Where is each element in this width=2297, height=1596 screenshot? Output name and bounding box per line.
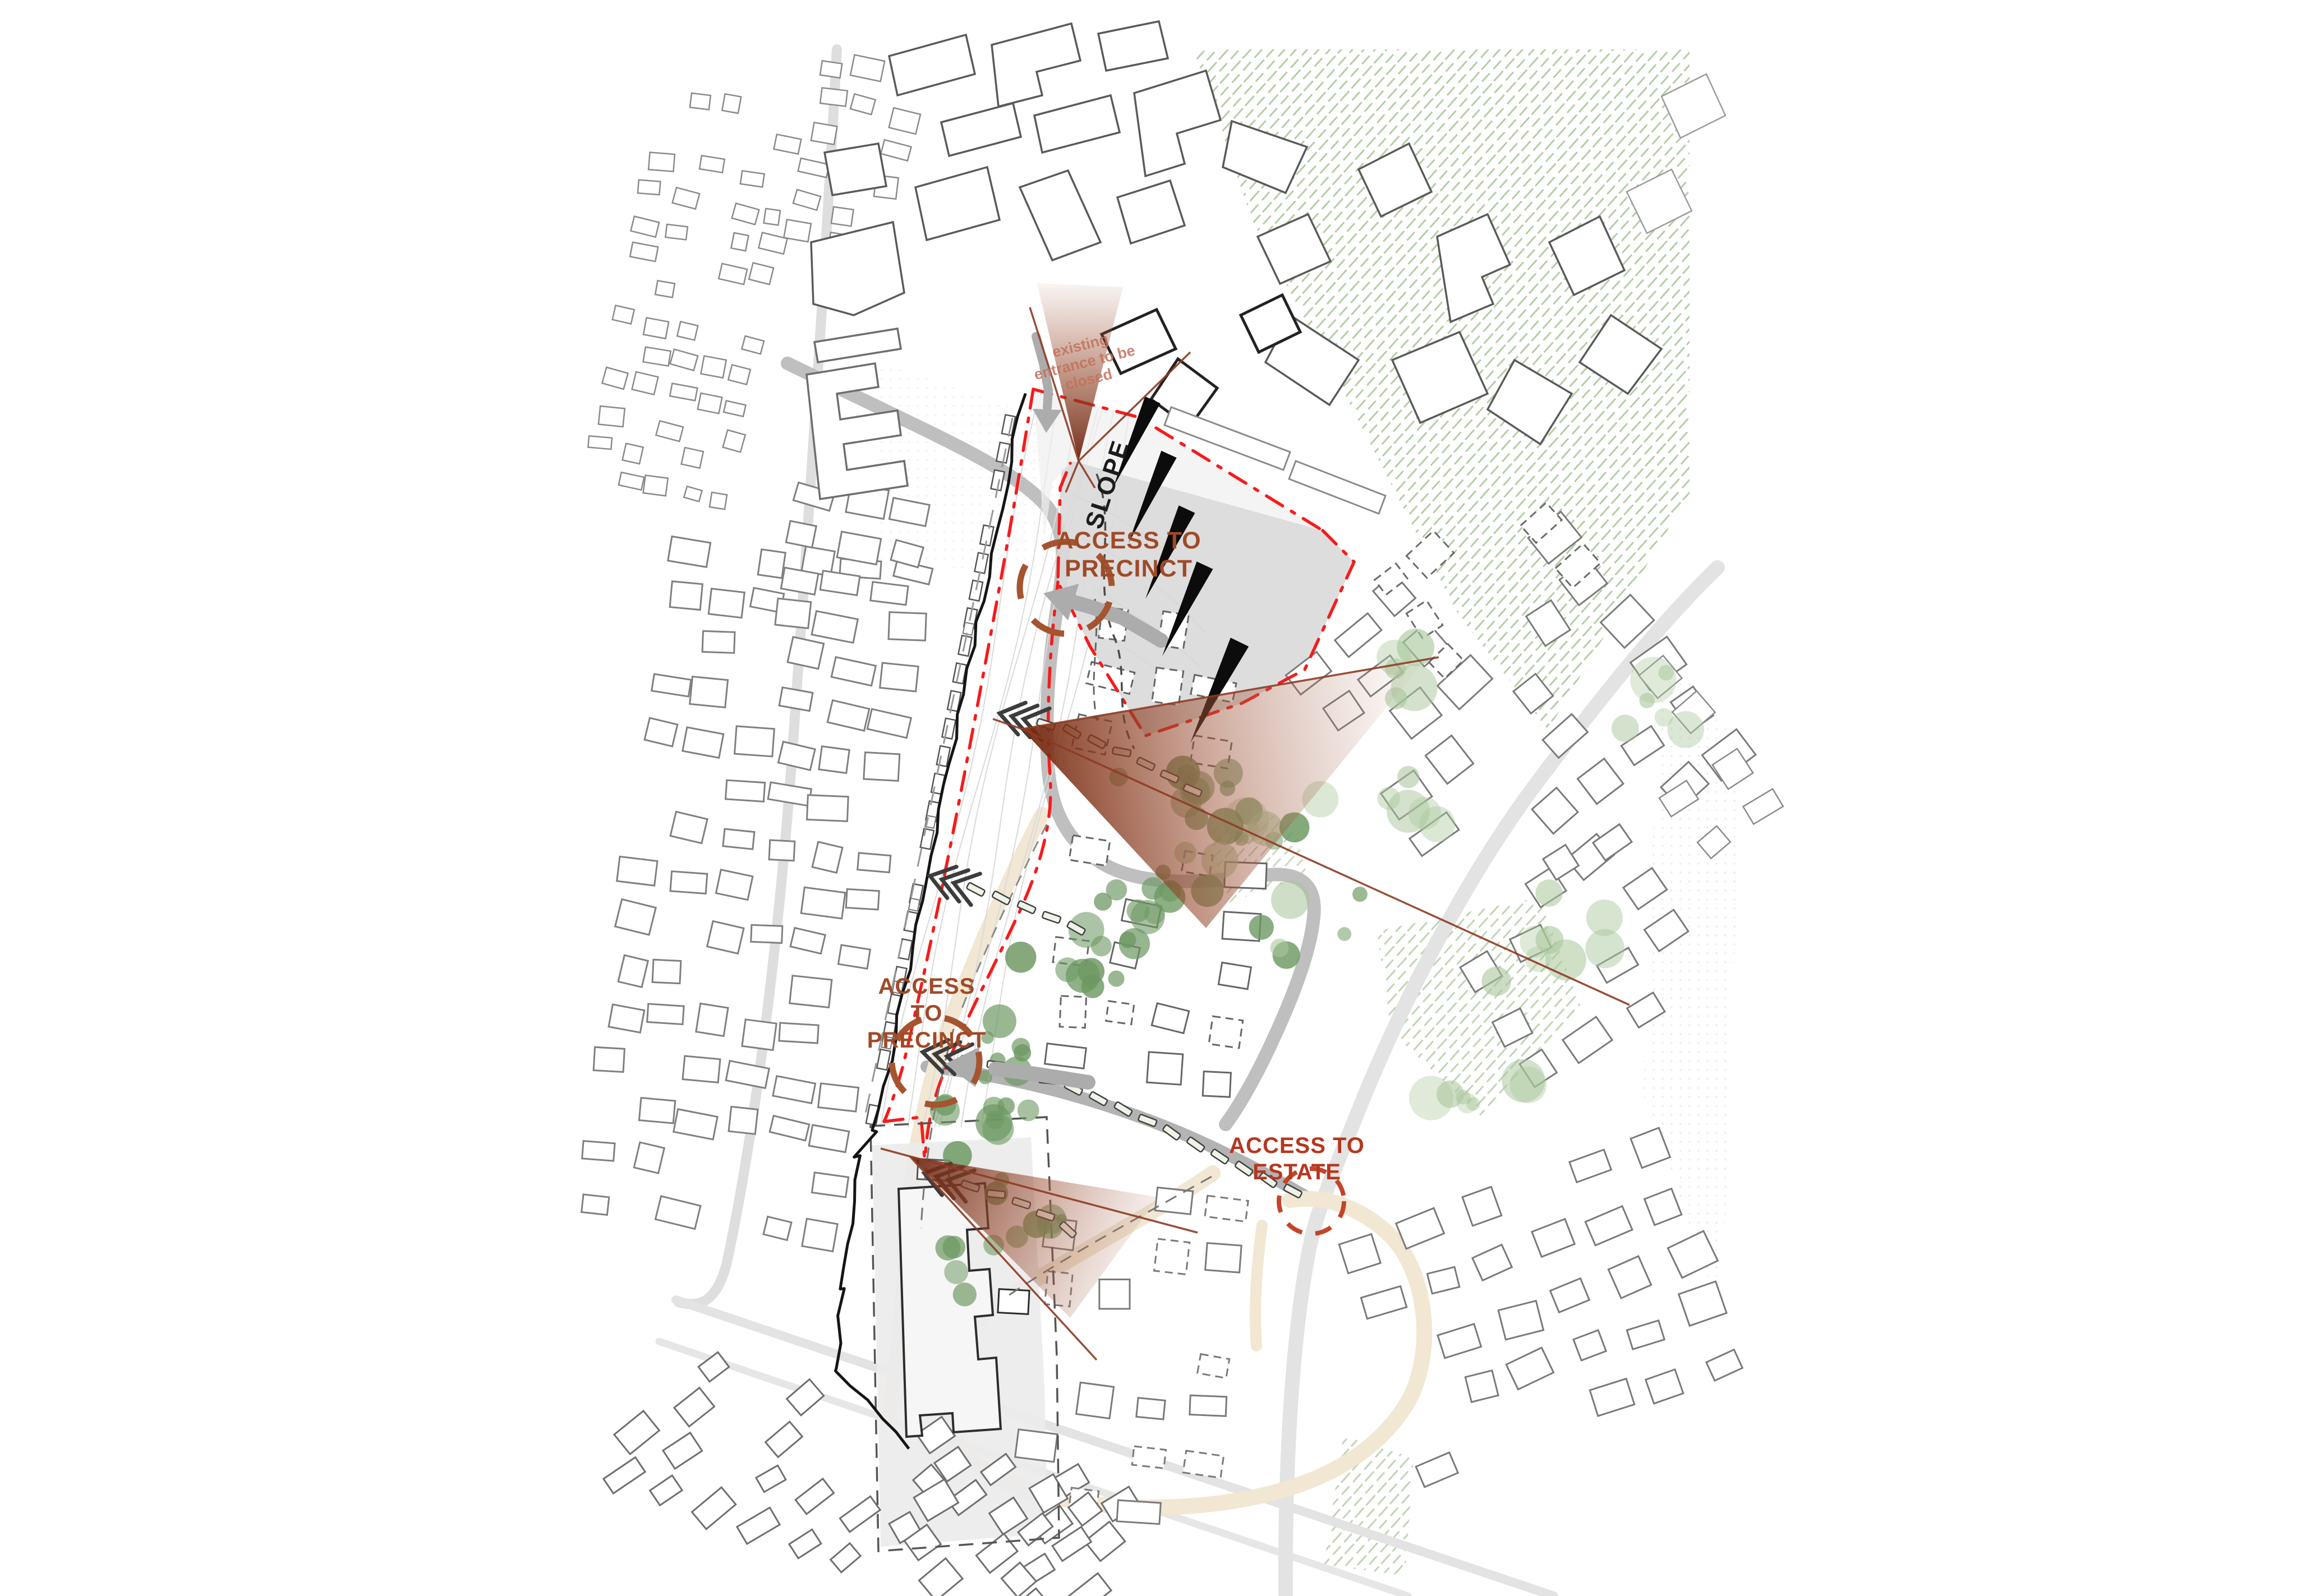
site-plan: SLOPE existingentrance to beclosed ACCES…: [0, 0, 2297, 1596]
e-complex-bar: [814, 329, 901, 362]
site-plan-canvas: SLOPE existingentrance to beclosed ACCES…: [0, 0, 2297, 1596]
access-to-precinct-label-mid: ACCESSTOPRECINCT: [867, 974, 986, 1053]
